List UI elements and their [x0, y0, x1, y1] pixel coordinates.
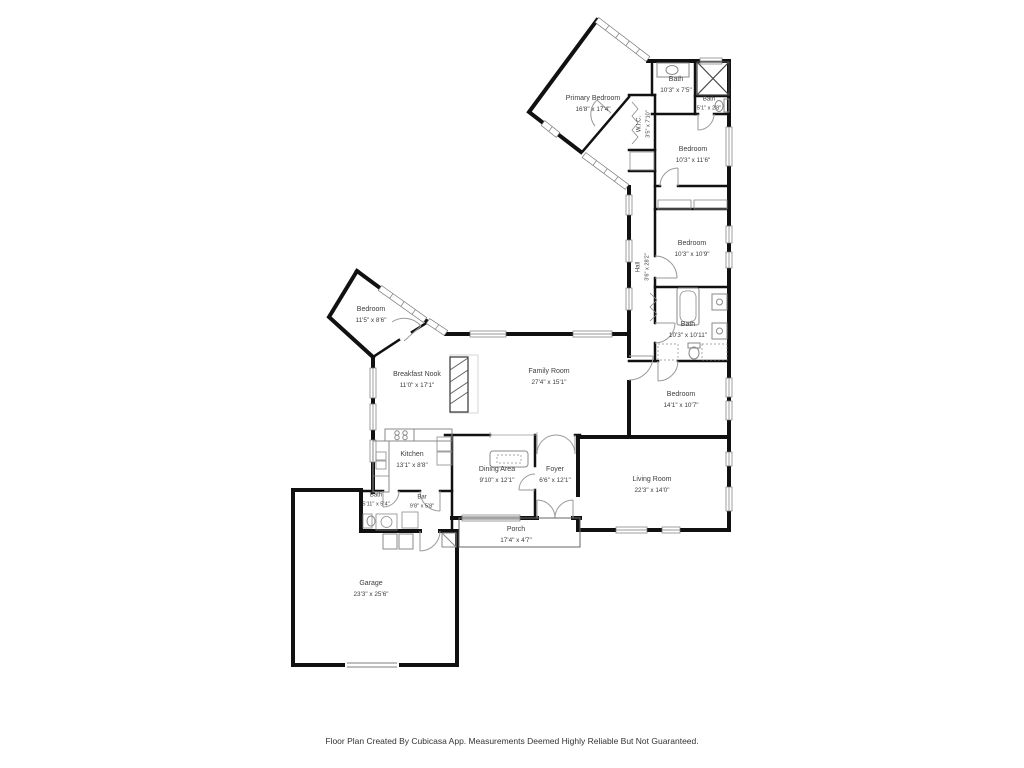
- footer-disclaimer: Floor Plan Created By Cubicasa App. Meas…: [0, 736, 1024, 746]
- diagonal-windows: [378, 18, 650, 336]
- floor-plan-page: Primary Bedroom 16'8" x 17'4" Bath 10'3"…: [0, 0, 1024, 768]
- exterior-walls: [293, 20, 729, 665]
- fixtures: [345, 62, 729, 669]
- interior-walls: [361, 61, 729, 531]
- floor-plan-drawing: [0, 0, 1024, 768]
